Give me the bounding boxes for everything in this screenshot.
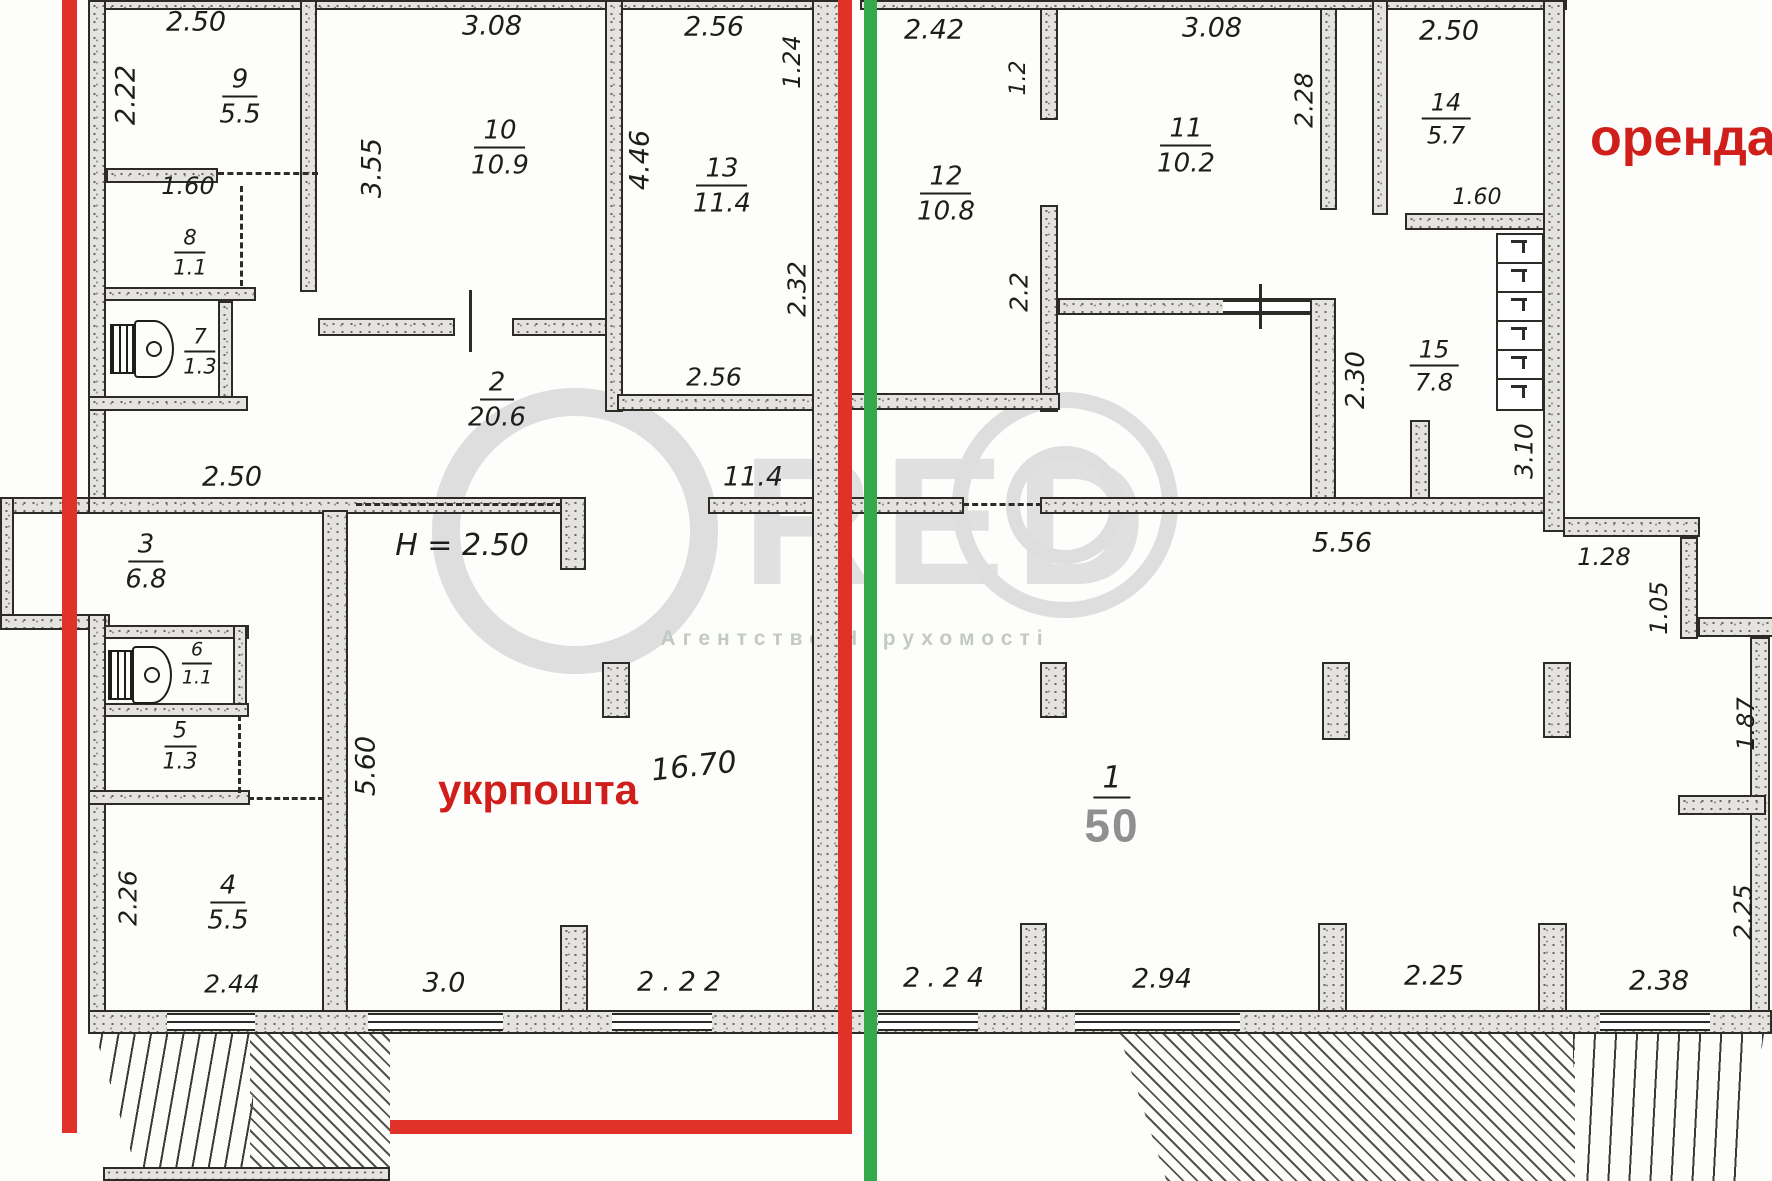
room-number: 10 bbox=[474, 118, 525, 149]
room-number: 13 bbox=[696, 156, 747, 187]
wall bbox=[846, 393, 1060, 410]
wall bbox=[1410, 420, 1430, 499]
room-area: 11.4 bbox=[693, 191, 751, 217]
wall bbox=[300, 0, 317, 292]
dimension-label: 4.46 bbox=[627, 130, 654, 190]
dimension-label: 3.08 bbox=[1182, 15, 1242, 42]
room-number: 1 bbox=[1093, 764, 1130, 799]
room-label: 8 1.1 bbox=[173, 228, 206, 279]
wall bbox=[1680, 537, 1698, 639]
room-number: 15 bbox=[1410, 338, 1459, 367]
wall bbox=[860, 0, 1567, 10]
dimension-label: 1.28 bbox=[1577, 545, 1630, 569]
dimension-label: 1.60 bbox=[1453, 187, 1502, 209]
room-area: 6.8 bbox=[125, 567, 166, 593]
window bbox=[1075, 1013, 1240, 1031]
room-label: 4 5.5 bbox=[207, 873, 248, 934]
wall bbox=[104, 625, 249, 639]
wall bbox=[1040, 497, 1552, 514]
column bbox=[1538, 923, 1567, 1012]
dimension-label: 2.24 bbox=[903, 965, 991, 992]
entrance-steps-left bbox=[85, 1034, 390, 1181]
window bbox=[167, 1013, 255, 1031]
room-number: 9 bbox=[223, 67, 258, 98]
wall bbox=[1405, 213, 1545, 230]
staircase bbox=[1496, 233, 1544, 411]
room-label: 3 6.8 bbox=[125, 532, 166, 593]
dimension-label: 1.87 bbox=[1734, 697, 1758, 750]
wall bbox=[1750, 637, 1770, 1019]
wall bbox=[1040, 8, 1058, 120]
wall bbox=[560, 497, 586, 570]
lintel bbox=[1223, 300, 1310, 313]
dashed-wall bbox=[240, 186, 243, 286]
room-area: 5.5 bbox=[219, 102, 260, 128]
window bbox=[368, 1013, 503, 1031]
room-area: 50 bbox=[1084, 803, 1139, 849]
dimension-label: 2.25 bbox=[1731, 884, 1756, 940]
room-area: 1.3 bbox=[163, 752, 198, 774]
room-label: 1 50 bbox=[1084, 764, 1139, 849]
room-area: 1.1 bbox=[173, 258, 206, 279]
room-area: 5.7 bbox=[1422, 124, 1471, 148]
room-label: 7 1.3 bbox=[183, 327, 216, 378]
boundary-line-red-left bbox=[62, 0, 77, 1133]
toilet-dot bbox=[146, 341, 162, 357]
wall bbox=[617, 394, 817, 411]
dashed-wall bbox=[963, 503, 1042, 506]
toilet-dot bbox=[144, 667, 160, 683]
dimension-label: 3.0 bbox=[423, 970, 466, 997]
dimension-label: 1.24 bbox=[780, 35, 804, 88]
stair-tread bbox=[1498, 322, 1542, 351]
dashed-wall bbox=[248, 797, 324, 800]
wall bbox=[1320, 8, 1337, 210]
door-mark bbox=[1259, 284, 1262, 329]
room-area: 1.1 bbox=[182, 669, 212, 688]
room-area: 10.8 bbox=[917, 199, 975, 225]
toilet-bowl bbox=[134, 320, 174, 378]
wall bbox=[1698, 617, 1772, 637]
dimension-label: 2.42 bbox=[904, 17, 964, 44]
column bbox=[1318, 923, 1347, 1012]
wall bbox=[318, 318, 455, 336]
ramp-hatch bbox=[250, 1034, 390, 1167]
window bbox=[612, 1013, 712, 1031]
room-number: 14 bbox=[1422, 91, 1471, 120]
column bbox=[560, 925, 588, 1012]
dimension-label: 2.28 bbox=[1292, 72, 1317, 128]
room-number: 4 bbox=[211, 873, 246, 904]
dimension-label: 1.05 bbox=[1647, 581, 1671, 634]
entrance-steps-right bbox=[1100, 1034, 1764, 1181]
wall bbox=[88, 0, 106, 514]
dimension-label: 5.60 bbox=[353, 736, 380, 796]
toilet-fixture bbox=[110, 312, 174, 386]
room-label: 13 11.4 bbox=[693, 156, 751, 217]
room-number: 8 bbox=[174, 228, 205, 254]
dimension-label: 2.32 bbox=[785, 261, 810, 317]
porch-edge bbox=[103, 1167, 390, 1181]
stair-tread bbox=[1498, 380, 1542, 409]
room-area: 10.2 bbox=[1157, 151, 1215, 177]
wall bbox=[88, 790, 250, 805]
wall bbox=[88, 614, 106, 1014]
dimension-label: 2.2 bbox=[1007, 272, 1032, 312]
dimension-label: 3.10 bbox=[1512, 423, 1537, 479]
column bbox=[1020, 923, 1047, 1012]
floor-plan: RED Агентство Нерухомості bbox=[0, 0, 1772, 1181]
ukrposhta-label: укрпошта bbox=[438, 766, 638, 814]
column bbox=[602, 662, 630, 718]
ramp-hatch bbox=[1100, 1034, 1575, 1181]
dimension-label: 2.25 bbox=[1404, 963, 1464, 990]
stair-tread bbox=[1498, 351, 1542, 380]
dimension-label: 5.56 bbox=[1312, 530, 1372, 557]
wall bbox=[512, 318, 610, 336]
room-number: 12 bbox=[920, 164, 971, 195]
wall bbox=[1543, 0, 1565, 532]
dimension-label: 2.26 bbox=[116, 870, 141, 926]
wall bbox=[605, 0, 623, 412]
wall bbox=[708, 497, 814, 514]
dimension-label: 2.56 bbox=[686, 365, 742, 390]
divider-line-green bbox=[864, 0, 877, 1181]
room-area: 7.8 bbox=[1410, 371, 1459, 395]
room-label: 11 10.2 bbox=[1157, 116, 1215, 177]
wall bbox=[104, 287, 256, 301]
dimension-label: 2.50 bbox=[1419, 18, 1479, 45]
room-label: 14 5.7 bbox=[1422, 91, 1471, 148]
room-number: 6 bbox=[182, 641, 212, 665]
dimension-label: 3.08 bbox=[462, 13, 522, 40]
window bbox=[878, 1013, 978, 1031]
door-mark bbox=[469, 290, 472, 352]
room-label: 15 7.8 bbox=[1410, 338, 1459, 395]
room-label: 9 5.5 bbox=[219, 67, 260, 128]
dashed-wall bbox=[356, 503, 562, 506]
window bbox=[1600, 1013, 1710, 1031]
stair-tread bbox=[1498, 293, 1542, 322]
stair-tread bbox=[1498, 264, 1542, 293]
watermark-subtitle: Агентство Нерухомості bbox=[660, 627, 1049, 651]
room-number: 5 bbox=[164, 721, 196, 748]
column bbox=[1040, 662, 1067, 718]
toilet-bowl bbox=[132, 646, 172, 704]
room-area: 10.9 bbox=[471, 153, 529, 179]
dimension-label: 3.55 bbox=[359, 138, 386, 198]
wall bbox=[88, 396, 248, 411]
dashed-wall bbox=[238, 715, 241, 793]
stair-tread bbox=[1498, 235, 1542, 264]
room-label: 10 10.9 bbox=[471, 118, 529, 179]
wall bbox=[1678, 795, 1766, 815]
height-note: H = 2.50 bbox=[395, 531, 529, 561]
dimension-label: 2.44 bbox=[204, 972, 260, 997]
room-number: 2 bbox=[480, 370, 515, 401]
wall bbox=[0, 497, 14, 630]
dimension-label: 2.22 bbox=[637, 969, 729, 996]
boundary-line-red-bottom bbox=[390, 1120, 852, 1134]
room-number: 3 bbox=[129, 532, 164, 563]
dashed-wall bbox=[218, 172, 318, 175]
column bbox=[1322, 662, 1350, 740]
wall bbox=[218, 301, 233, 398]
room-label: 5 1.3 bbox=[163, 721, 198, 774]
wall bbox=[1040, 205, 1058, 412]
dimension-label: 1.2 bbox=[1008, 61, 1030, 96]
dimension-label: 2.50 bbox=[202, 464, 262, 491]
dimension-label: 2.50 bbox=[166, 9, 226, 36]
room-label: 2 20.6 bbox=[468, 370, 526, 431]
wall bbox=[322, 510, 348, 1012]
room-number: 7 bbox=[184, 327, 215, 353]
wall bbox=[1563, 517, 1700, 537]
wall bbox=[1310, 298, 1336, 499]
column bbox=[1543, 662, 1571, 738]
dimension-label: 16.70 bbox=[650, 748, 739, 787]
dimension-label: 1.60 bbox=[161, 174, 214, 198]
steps-hatch bbox=[1573, 1034, 1764, 1181]
dimension-label: 2.22 bbox=[113, 65, 140, 125]
toilet-tank bbox=[108, 650, 132, 700]
room-area: 1.3 bbox=[183, 357, 216, 378]
dimension-label: 2.94 bbox=[1132, 966, 1192, 993]
wall bbox=[1372, 0, 1388, 215]
room-area: 20.6 bbox=[468, 405, 526, 431]
room-area: 5.5 bbox=[207, 908, 248, 934]
dimension-label: 2.30 bbox=[1343, 351, 1369, 409]
toilet-fixture bbox=[108, 638, 172, 710]
room-label: 6 1.1 bbox=[182, 641, 212, 688]
room-label: 12 10.8 bbox=[917, 164, 975, 225]
dimension-label: 2.56 bbox=[684, 14, 744, 41]
fan-steps-hatch bbox=[85, 1034, 253, 1167]
dimension-label: 2.38 bbox=[1629, 968, 1689, 995]
toilet-tank bbox=[110, 324, 134, 374]
dimension-label: 11.4 bbox=[723, 464, 783, 491]
room-number: 11 bbox=[1160, 116, 1211, 147]
orenda-label: оренда bbox=[1590, 108, 1772, 168]
boundary-line-red-right bbox=[838, 0, 852, 1134]
